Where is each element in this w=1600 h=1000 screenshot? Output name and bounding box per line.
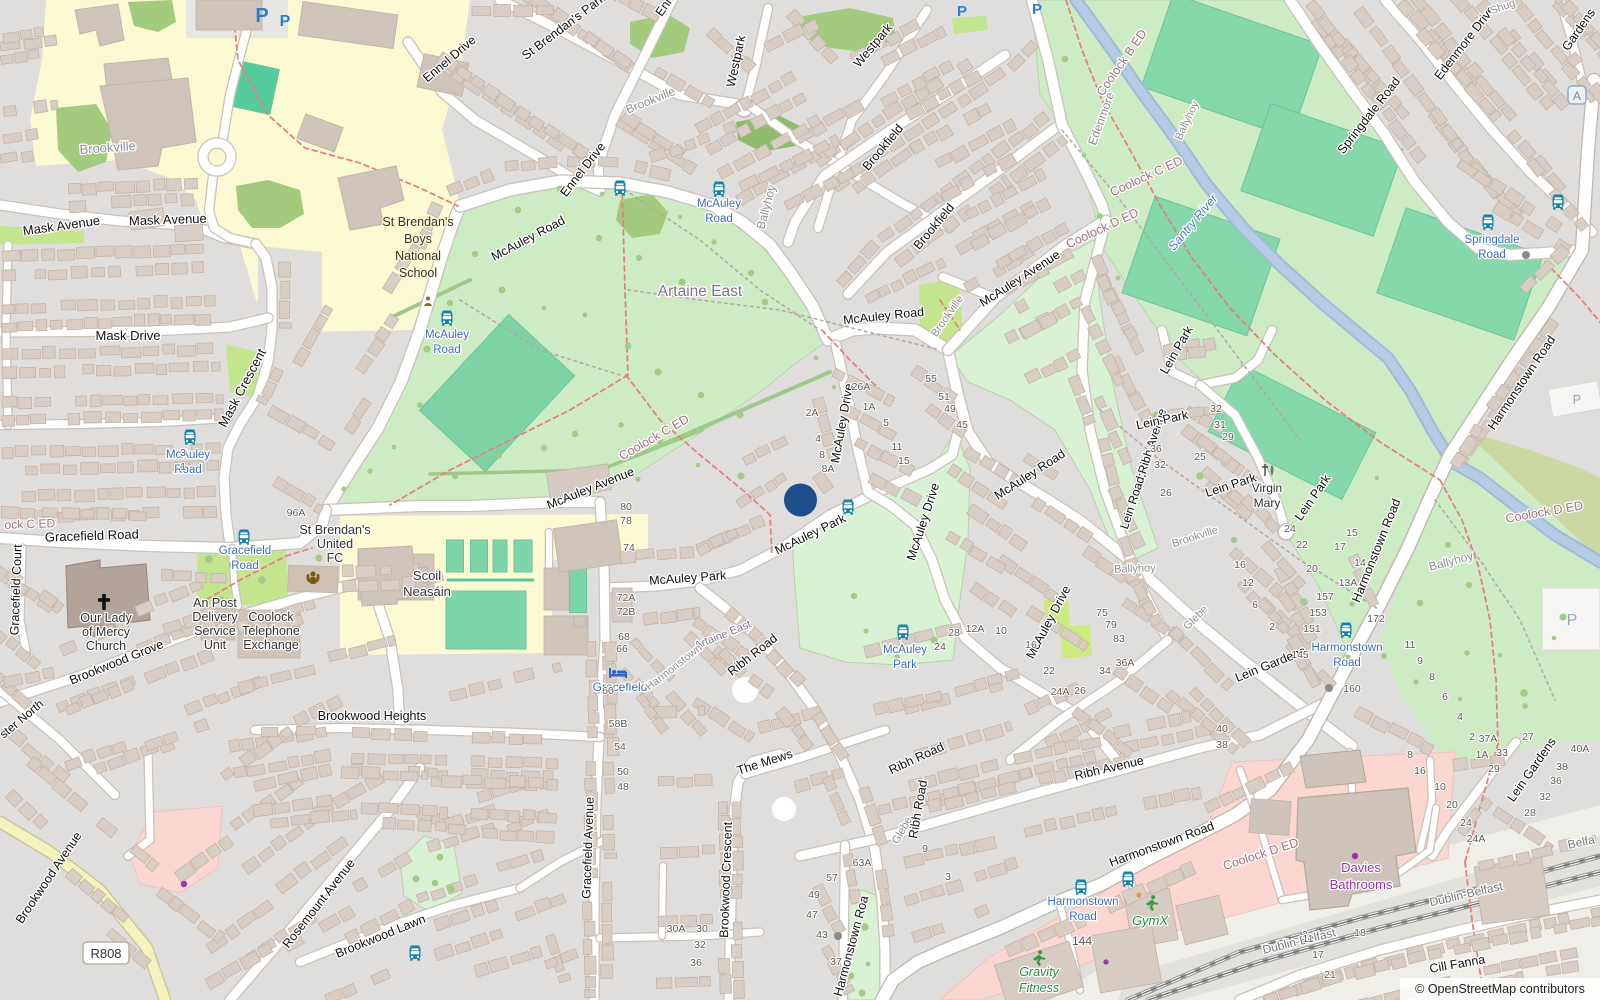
- svg-text:of Mercy: of Mercy: [82, 625, 131, 639]
- svg-text:8: 8: [819, 449, 825, 461]
- svg-text:Our Lady: Our Lady: [80, 611, 132, 625]
- svg-text:153: 153: [1309, 607, 1327, 619]
- svg-text:P: P: [1567, 612, 1578, 629]
- svg-text:Road: Road: [1478, 249, 1506, 261]
- svg-text:2: 2: [1269, 621, 1275, 633]
- svg-text:36: 36: [1150, 443, 1162, 455]
- svg-text:Road: Road: [174, 464, 202, 476]
- svg-text:49: 49: [944, 403, 956, 415]
- svg-text:1A: 1A: [863, 401, 876, 413]
- svg-text:GymX: GymX: [1132, 913, 1169, 928]
- svg-text:26A: 26A: [852, 381, 871, 393]
- svg-text:Brookwood Heights: Brookwood Heights: [318, 709, 426, 723]
- svg-text:49: 49: [808, 889, 820, 901]
- svg-text:Artaine East: Artaine East: [658, 283, 743, 300]
- svg-text:Ballyhoy: Ballyhoy: [1114, 562, 1156, 575]
- svg-text:Park: Park: [893, 659, 917, 671]
- svg-text:17: 17: [1312, 949, 1324, 961]
- svg-text:36A: 36A: [1116, 657, 1135, 669]
- svg-text:58B: 58B: [609, 718, 628, 730]
- svg-text:30: 30: [696, 923, 708, 935]
- svg-text:72A: 72A: [617, 592, 636, 604]
- svg-text:10: 10: [995, 625, 1007, 637]
- svg-text:25: 25: [1194, 451, 1206, 463]
- svg-text:P: P: [957, 3, 967, 20]
- svg-text:55: 55: [925, 373, 937, 385]
- svg-text:2A: 2A: [806, 407, 819, 419]
- svg-text:Road: Road: [1333, 657, 1361, 669]
- svg-text:27: 27: [1522, 731, 1534, 743]
- svg-text:P: P: [280, 13, 291, 30]
- svg-text:Road: Road: [231, 560, 259, 572]
- svg-text:Mary: Mary: [1254, 496, 1281, 510]
- svg-text:18: 18: [1354, 927, 1366, 939]
- svg-text:26: 26: [1074, 685, 1086, 697]
- svg-text:Harmonstown: Harmonstown: [1312, 642, 1383, 654]
- svg-text:Bathrooms: Bathrooms: [1330, 877, 1393, 892]
- svg-text:17: 17: [1334, 541, 1346, 553]
- svg-text:75: 75: [1096, 607, 1108, 619]
- svg-text:Harmonstown: Harmonstown: [1048, 896, 1119, 908]
- svg-text:29: 29: [1488, 763, 1500, 775]
- svg-text:Gracefield: Gracefield: [219, 545, 271, 557]
- svg-text:83: 83: [1113, 633, 1125, 645]
- svg-text:McAuley: McAuley: [166, 449, 210, 461]
- svg-text:Road: Road: [705, 213, 733, 225]
- svg-text:St Brendan's: St Brendan's: [299, 523, 370, 537]
- svg-text:24A: 24A: [1051, 686, 1070, 698]
- svg-text:28: 28: [1524, 807, 1536, 819]
- svg-text:An Post: An Post: [193, 596, 237, 610]
- svg-text:51: 51: [938, 391, 950, 403]
- svg-text:8A: 8A: [822, 463, 835, 475]
- svg-text:6: 6: [1252, 599, 1258, 611]
- svg-text:16: 16: [1025, 639, 1037, 651]
- svg-text:24: 24: [934, 641, 946, 653]
- svg-text:22: 22: [1043, 665, 1055, 677]
- svg-text:79: 79: [1105, 619, 1117, 631]
- svg-text:24: 24: [1460, 817, 1472, 829]
- svg-text:Road: Road: [1069, 911, 1097, 923]
- svg-text:3: 3: [180, 447, 186, 459]
- svg-text:5: 5: [883, 417, 889, 429]
- svg-text:12: 12: [1242, 577, 1254, 589]
- svg-text:Neasáin: Neasáin: [403, 584, 451, 599]
- svg-text:32: 32: [1539, 791, 1551, 803]
- svg-text:10: 10: [1434, 781, 1446, 793]
- svg-text:4: 4: [815, 433, 821, 445]
- svg-text:1: 1: [180, 461, 186, 473]
- svg-text:157: 157: [1316, 591, 1334, 603]
- svg-text:Mask Avenue: Mask Avenue: [129, 211, 207, 229]
- svg-text:50: 50: [617, 766, 629, 778]
- svg-text:Springdale: Springdale: [1465, 234, 1520, 246]
- svg-text:National: National: [395, 249, 441, 263]
- svg-text:9: 9: [1417, 655, 1423, 667]
- svg-text:1A: 1A: [1476, 749, 1489, 761]
- svg-text:3: 3: [945, 871, 951, 883]
- svg-text:24: 24: [1284, 523, 1296, 535]
- svg-text:28: 28: [948, 627, 960, 639]
- svg-text:30A: 30A: [667, 923, 686, 935]
- svg-text:38: 38: [1216, 739, 1228, 751]
- svg-text:Coolock: Coolock: [248, 610, 294, 624]
- svg-text:9: 9: [922, 843, 928, 855]
- svg-text:80: 80: [620, 501, 632, 513]
- svg-text:6: 6: [1442, 691, 1448, 703]
- svg-text:36: 36: [1550, 775, 1562, 787]
- svg-text:Virgin: Virgin: [1252, 481, 1282, 495]
- svg-text:32: 32: [1154, 459, 1166, 471]
- svg-text:Exchange: Exchange: [243, 638, 299, 652]
- svg-text:8: 8: [1407, 749, 1413, 761]
- svg-text:31: 31: [1214, 419, 1226, 431]
- svg-text:2: 2: [1469, 731, 1475, 743]
- svg-text:24A: 24A: [1467, 833, 1486, 845]
- svg-text:FC: FC: [327, 551, 344, 565]
- svg-text:38: 38: [1556, 761, 1568, 773]
- svg-text:4: 4: [1457, 711, 1463, 723]
- svg-text:McAuley: McAuley: [425, 329, 469, 341]
- svg-text:36: 36: [690, 957, 702, 969]
- svg-text:13A: 13A: [1339, 577, 1358, 589]
- svg-text:11: 11: [1405, 639, 1416, 651]
- svg-text:47: 47: [806, 909, 818, 921]
- svg-text:68: 68: [618, 631, 630, 643]
- svg-text:160: 160: [1343, 683, 1361, 695]
- svg-text:11: 11: [892, 441, 903, 453]
- svg-text:33: 33: [1496, 747, 1508, 759]
- svg-text:15: 15: [898, 455, 910, 467]
- svg-text:72B: 72B: [617, 606, 636, 618]
- svg-text:McAuley: McAuley: [697, 198, 741, 210]
- svg-text:R808: R808: [90, 946, 121, 961]
- svg-text:12A: 12A: [966, 623, 985, 635]
- svg-text:11: 11: [1303, 933, 1314, 945]
- svg-text:P: P: [1032, 1, 1042, 18]
- svg-text:Mask Drive: Mask Drive: [95, 328, 160, 343]
- svg-text:United: United: [317, 537, 353, 551]
- svg-text:Unit: Unit: [204, 638, 227, 652]
- svg-text:School: School: [399, 266, 437, 280]
- svg-text:40: 40: [1216, 723, 1228, 735]
- svg-text:Delivery: Delivery: [192, 610, 238, 624]
- svg-text:Church: Church: [86, 639, 126, 653]
- svg-text:8: 8: [1429, 671, 1435, 683]
- svg-text:43: 43: [816, 929, 828, 941]
- svg-text:57: 57: [826, 872, 838, 884]
- svg-text:151: 151: [1303, 623, 1321, 635]
- svg-text:Scoil: Scoil: [413, 568, 441, 583]
- svg-text:144: 144: [1072, 934, 1092, 948]
- svg-text:St Brendan's: St Brendan's: [382, 215, 453, 229]
- svg-text:48: 48: [617, 781, 629, 793]
- svg-text:20: 20: [1446, 799, 1458, 811]
- svg-text:45: 45: [956, 419, 968, 431]
- svg-text:32: 32: [1210, 403, 1222, 415]
- svg-text:Service: Service: [194, 624, 236, 638]
- svg-text:37A: 37A: [1479, 733, 1498, 745]
- svg-text:P: P: [1573, 392, 1582, 407]
- svg-text:96A: 96A: [287, 507, 306, 519]
- svg-text:172: 172: [1367, 613, 1385, 625]
- svg-text:37: 37: [830, 956, 842, 968]
- svg-text:54: 54: [614, 741, 626, 753]
- svg-text:145: 145: [1291, 649, 1309, 661]
- svg-text:Telephone: Telephone: [242, 624, 300, 638]
- svg-text:22: 22: [1296, 539, 1308, 551]
- svg-text:Fitness: Fitness: [1019, 981, 1059, 995]
- svg-text:14: 14: [1354, 557, 1366, 569]
- svg-text:63A: 63A: [853, 857, 872, 869]
- svg-text:© OpenStreetMap contributors: © OpenStreetMap contributors: [1415, 982, 1585, 996]
- svg-text:McAuley: McAuley: [883, 644, 927, 656]
- svg-text:21: 21: [1324, 969, 1336, 981]
- svg-text:Davies: Davies: [1341, 860, 1381, 875]
- svg-text:34: 34: [1099, 665, 1111, 677]
- svg-text:16: 16: [1234, 559, 1246, 571]
- svg-text:74: 74: [623, 542, 635, 554]
- svg-text:60: 60: [602, 685, 614, 697]
- svg-text:26: 26: [1160, 487, 1172, 499]
- svg-text:P: P: [255, 5, 268, 27]
- svg-text:Road: Road: [433, 344, 461, 356]
- svg-text:A: A: [1573, 89, 1581, 103]
- svg-text:66: 66: [616, 643, 628, 655]
- svg-text:Boys: Boys: [404, 232, 432, 246]
- svg-text:16: 16: [1414, 765, 1426, 777]
- svg-text:32: 32: [694, 939, 706, 951]
- svg-text:15: 15: [1346, 527, 1358, 539]
- svg-text:29: 29: [1222, 431, 1234, 443]
- svg-text:Gracefield: Gracefield: [593, 680, 648, 694]
- svg-text:20: 20: [1306, 563, 1318, 575]
- svg-text:40A: 40A: [1571, 743, 1590, 755]
- svg-text:Gravity: Gravity: [1019, 965, 1059, 979]
- svg-text:78: 78: [620, 515, 632, 527]
